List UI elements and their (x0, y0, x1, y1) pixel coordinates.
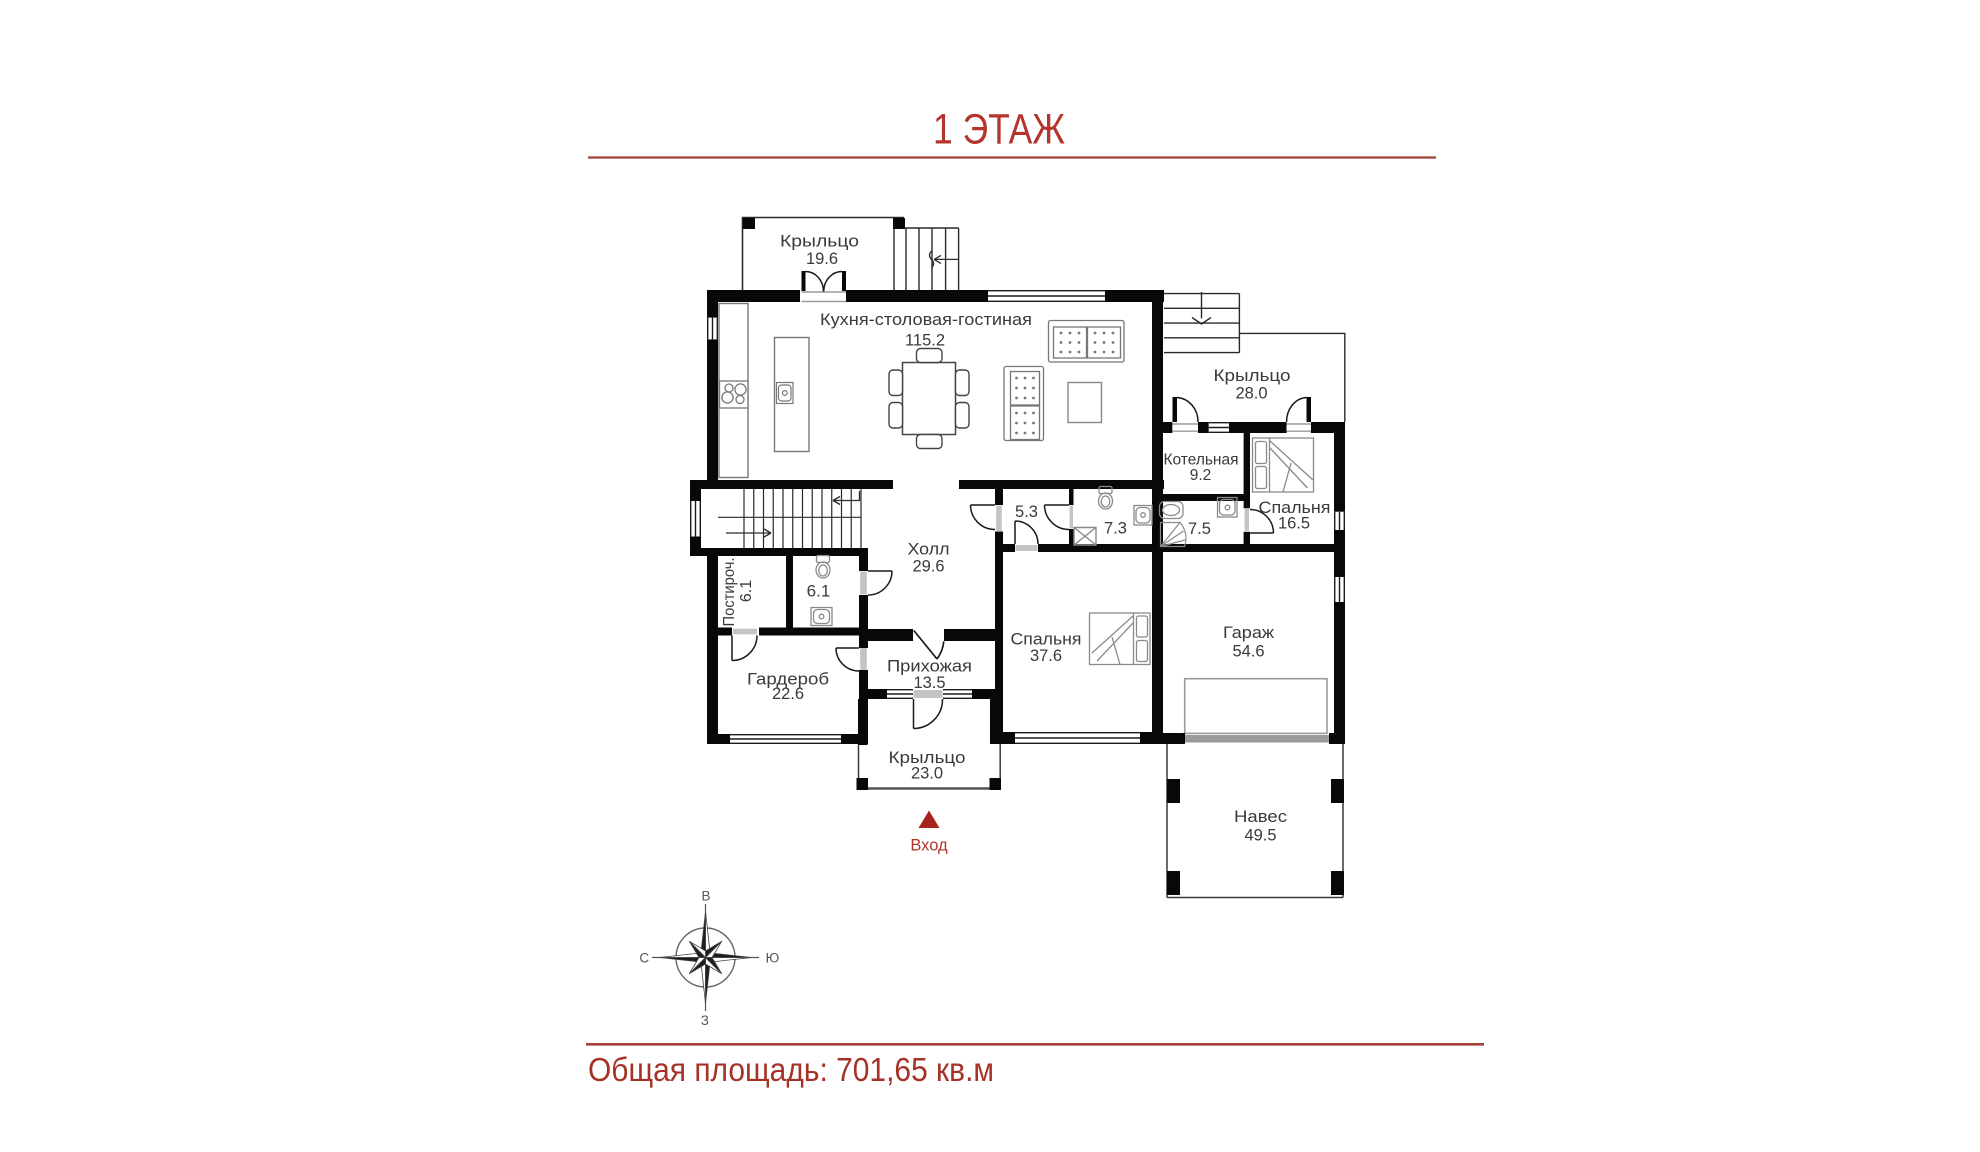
svg-text:Постироч.: Постироч. (721, 558, 738, 627)
svg-text:С: С (639, 951, 649, 966)
svg-text:37.6: 37.6 (1030, 647, 1062, 665)
svg-text:49.5: 49.5 (1244, 827, 1276, 845)
svg-text:Ю: Ю (766, 951, 780, 966)
svg-text:Общая площадь: 701,65 кв.м: Общая площадь: 701,65 кв.м (588, 1052, 994, 1089)
svg-text:115.2: 115.2 (905, 332, 945, 350)
svg-text:29.6: 29.6 (912, 558, 944, 576)
svg-text:28.0: 28.0 (1235, 385, 1267, 403)
svg-text:7.5: 7.5 (1188, 520, 1211, 538)
svg-text:Крыльцо: Крыльцо (1214, 366, 1291, 385)
svg-text:23.0: 23.0 (911, 765, 943, 783)
svg-text:Навес: Навес (1234, 807, 1288, 826)
svg-text:5.3: 5.3 (1015, 503, 1038, 521)
svg-text:В: В (701, 889, 710, 904)
svg-text:9.2: 9.2 (1190, 467, 1212, 484)
svg-text:6.1: 6.1 (807, 582, 831, 601)
svg-text:7.3: 7.3 (1104, 520, 1127, 538)
svg-text:Вход: Вход (910, 837, 948, 855)
svg-text:З: З (701, 1013, 709, 1028)
svg-text:16.5: 16.5 (1278, 515, 1310, 533)
svg-text:19.6: 19.6 (806, 250, 838, 268)
svg-text:6.1: 6.1 (738, 580, 755, 602)
svg-text:54.6: 54.6 (1232, 643, 1264, 661)
svg-text:Спальня: Спальня (1011, 630, 1082, 649)
svg-text:Котельная: Котельная (1164, 452, 1239, 469)
svg-text:22.6: 22.6 (772, 685, 804, 703)
svg-text:Кухня-столовая-гостиная: Кухня-столовая-гостиная (820, 310, 1032, 329)
svg-text:13.5: 13.5 (913, 674, 945, 692)
svg-text:1 ЭТАЖ: 1 ЭТАЖ (933, 106, 1065, 154)
svg-text:Гараж: Гараж (1223, 623, 1275, 642)
svg-text:Холл: Холл (908, 540, 950, 559)
svg-text:Крыльцо: Крыльцо (780, 232, 859, 251)
svg-text:Прихожая: Прихожая (887, 657, 972, 676)
